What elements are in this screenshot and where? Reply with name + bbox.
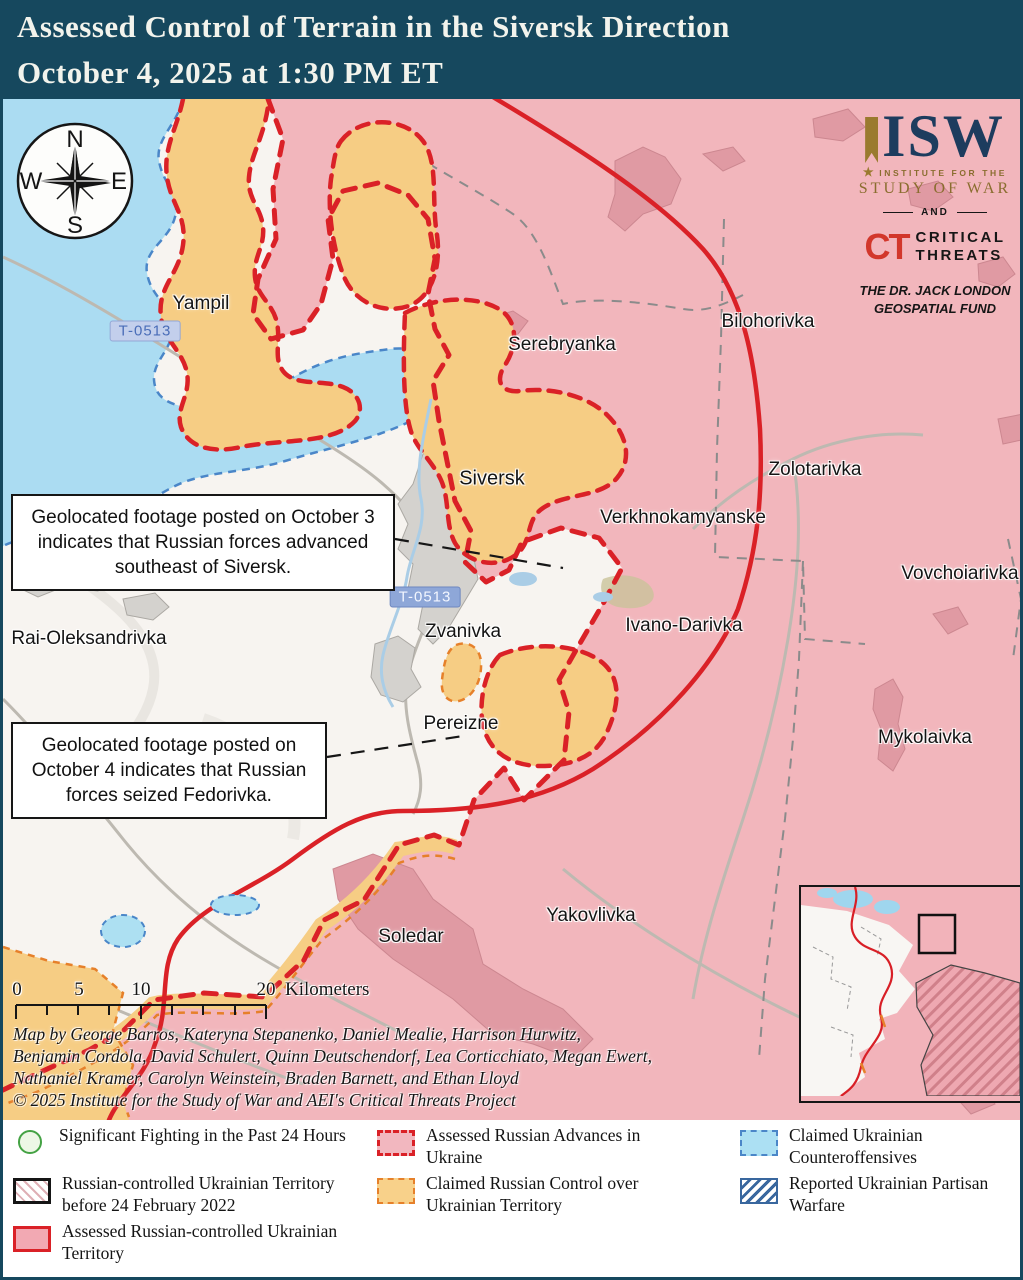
label-soledar: Soledar <box>378 926 444 948</box>
label-verkhnokamyanske: Verkhnokamyanske <box>600 507 766 529</box>
label-vovchoiarivka: Vovchoiarivka <box>901 563 1018 585</box>
compass-s: S <box>67 212 83 239</box>
isw-logo: ISW <box>882 107 1005 165</box>
russian-control-swatch <box>13 1226 51 1252</box>
advances-swatch <box>377 1130 415 1156</box>
scale-5: 5 <box>74 979 84 1001</box>
legend-item-counteroffensives: Claimed Ukrainian Counteroffensives <box>740 1125 1010 1168</box>
legend-item-partisan: Reported Ukrainian Partisan Warfare <box>740 1173 1010 1216</box>
compass-n: N <box>66 126 83 153</box>
compass-e: E <box>111 168 127 195</box>
scale-10: 10 <box>132 979 151 1001</box>
isw-study-of-war: STUDY OF WAR <box>850 180 1020 198</box>
inset-locator-map <box>799 885 1023 1103</box>
label-yakovlivka: Yakovlivka <box>546 905 635 927</box>
compass-w: W <box>20 168 43 195</box>
and-divider: AND <box>850 207 1020 218</box>
critical-threats-logo: CT CRITICAL THREATS <box>850 226 1020 268</box>
label-zolotarivka: Zolotarivka <box>769 459 862 481</box>
legend-item-claimed-control: Claimed Russian Control over Ukrainian T… <box>377 1173 687 1216</box>
scale-0: 0 <box>12 979 22 1001</box>
fighting-circle-icon <box>18 1130 42 1154</box>
legend-item-advances: Assessed Russian Advances in Ukraine <box>377 1125 687 1168</box>
scale-20: 20 <box>257 979 276 1001</box>
partisan-hatch-swatch <box>740 1178 778 1204</box>
scale-unit: Kilometers <box>285 979 369 1001</box>
annotation-october-3: Geolocated footage posted on October 3 i… <box>11 494 395 591</box>
annotation-october-4: Geolocated footage posted on October 4 i… <box>11 722 327 819</box>
isw-map-page: Assessed Control of Terrain in the Siver… <box>0 0 1023 1280</box>
label-serebryanka: Serebryanka <box>508 334 616 356</box>
legend-item-fighting: Significant Fighting in the Past 24 Hour… <box>13 1125 358 1154</box>
credits-line4: © 2025 Institute for the Study of War an… <box>13 1090 516 1111</box>
compass-rose: N E S W <box>15 121 135 246</box>
legend-item-pre2022: Russian-controlled Ukrainian Territory b… <box>13 1173 358 1216</box>
claimed-control-swatch <box>377 1178 415 1204</box>
isw-institute-line: ★INSTITUTE FOR THE <box>850 165 1020 179</box>
road-badge-t0513-north: T-0513 <box>110 321 181 342</box>
ct-icon: CT <box>865 226 909 268</box>
branding-block: ISW ★INSTITUTE FOR THE STUDY OF WAR AND … <box>850 107 1020 318</box>
map-area: N E S W ISW ★INSTITUTE FOR THE STUDY OF … <box>3 99 1023 1120</box>
credits-line2: Benjamin Cordola, David Schulert, Quinn … <box>13 1046 652 1067</box>
geospatial-fund-line: THE DR. JACK LONDON GEOSPATIAL FUND <box>850 282 1020 318</box>
label-mykolaivka: Mykolaivka <box>878 727 972 749</box>
legend-item-russian-control: Assessed Russian-controlled Ukrainian Te… <box>13 1221 358 1264</box>
label-ivano-darivka: Ivano-Darivka <box>625 615 742 637</box>
page-title-line2: October 4, 2025 at 1:30 PM ET <box>17 55 443 91</box>
title-bar: Assessed Control of Terrain in the Siver… <box>3 3 1020 99</box>
label-zvanivka: Zvanivka <box>425 621 501 643</box>
legend: Significant Fighting in the Past 24 Hour… <box>3 1120 1023 1280</box>
counteroffensives-swatch <box>740 1130 778 1156</box>
label-pereizne: Pereizne <box>424 713 499 735</box>
label-siversk: Siversk <box>459 468 525 491</box>
credits-line1: Map by George Barros, Kateryna Stepanenk… <box>13 1024 581 1045</box>
road-badge-t0513-south: T-0513 <box>390 587 461 608</box>
isw-ribbon-icon <box>865 117 878 163</box>
pre2022-hatch-swatch <box>13 1178 51 1204</box>
star-icon: ★ <box>863 165 876 179</box>
label-bilohorivka: Bilohorivka <box>722 311 815 333</box>
credits-line3: Nathaniel Kramer, Carolyn Weinstein, Bra… <box>13 1068 519 1089</box>
page-title-line1: Assessed Control of Terrain in the Siver… <box>17 9 730 45</box>
label-rai-oleksandrivka: Rai-Oleksandrivka <box>11 628 166 650</box>
label-yampil: Yampil <box>173 293 230 315</box>
